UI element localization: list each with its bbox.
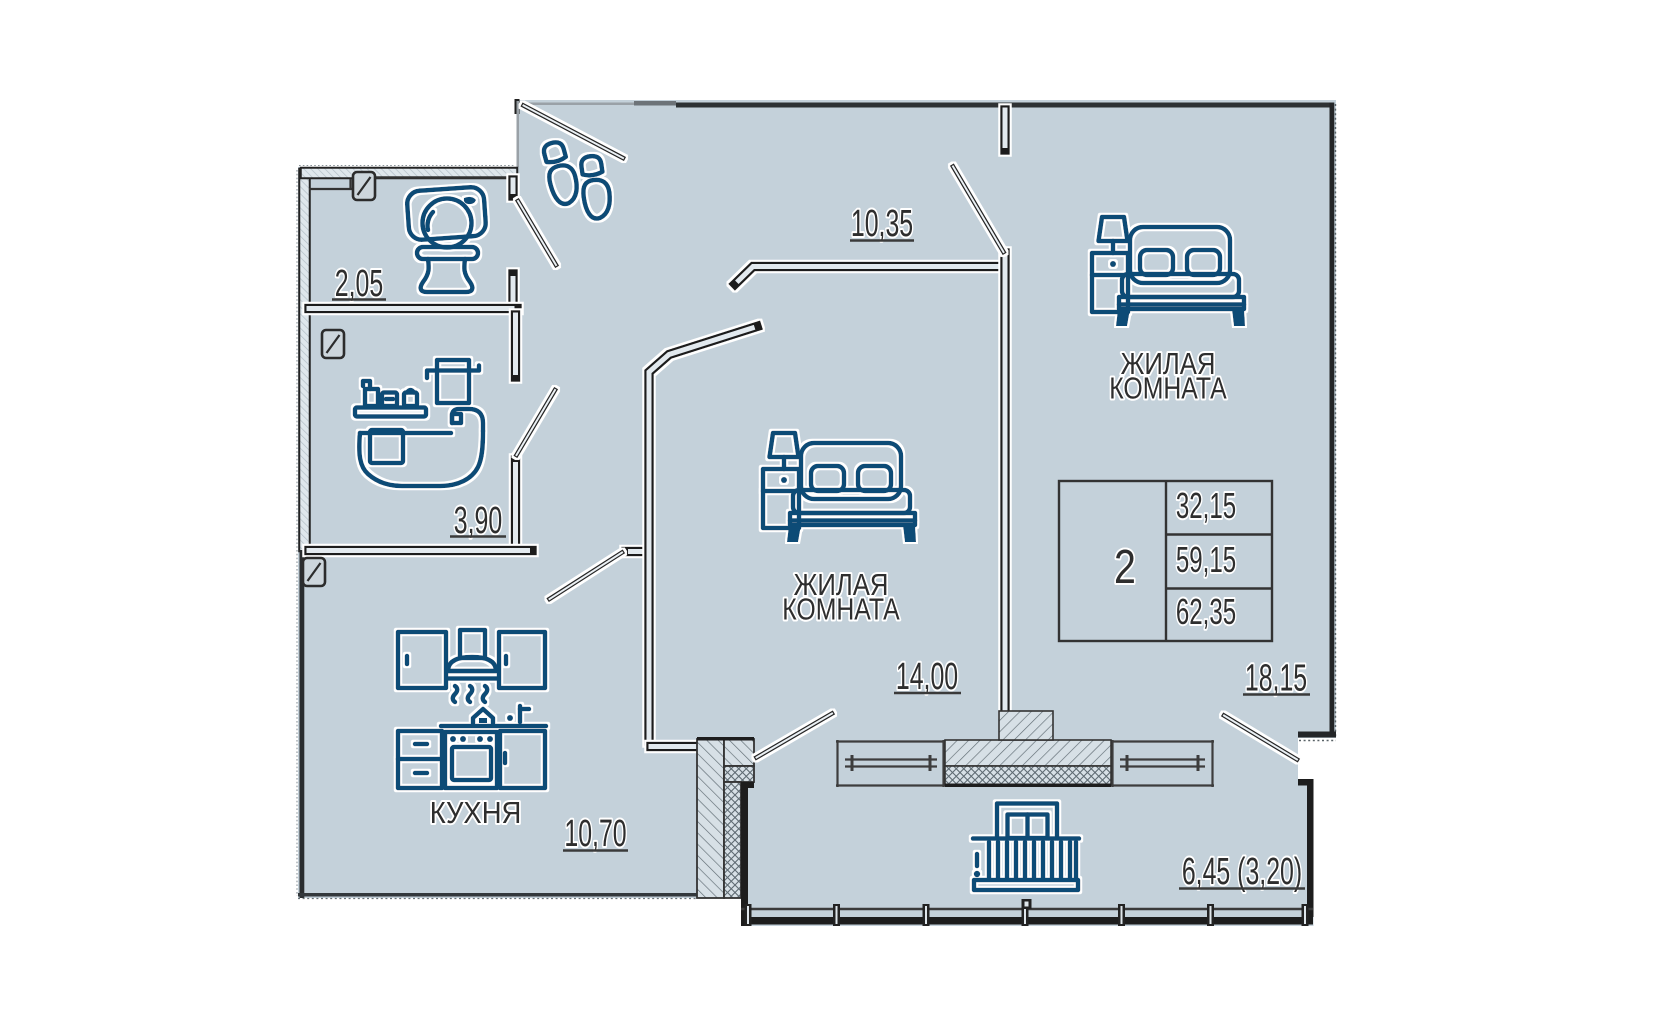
svg-text:62,35: 62,35 — [1176, 591, 1236, 632]
svg-text:КУХНЯ: КУХНЯ — [430, 797, 522, 831]
svg-text:3,90: 3,90 — [454, 499, 502, 542]
svg-text:КОМНАТА: КОМНАТА — [1109, 371, 1227, 405]
svg-text:10,70: 10,70 — [564, 812, 626, 855]
svg-text:18,15: 18,15 — [1245, 656, 1307, 699]
svg-text:14,00: 14,00 — [896, 655, 958, 698]
svg-text:6,45 (3,20): 6,45 (3,20) — [1182, 850, 1302, 893]
svg-text:10,35: 10,35 — [851, 202, 913, 245]
svg-text:2: 2 — [1114, 540, 1136, 594]
svg-text:32,15: 32,15 — [1176, 485, 1236, 526]
svg-text:КОМНАТА: КОМНАТА — [782, 592, 900, 626]
svg-text:59,15: 59,15 — [1176, 539, 1236, 580]
svg-text:2,05: 2,05 — [335, 262, 383, 305]
